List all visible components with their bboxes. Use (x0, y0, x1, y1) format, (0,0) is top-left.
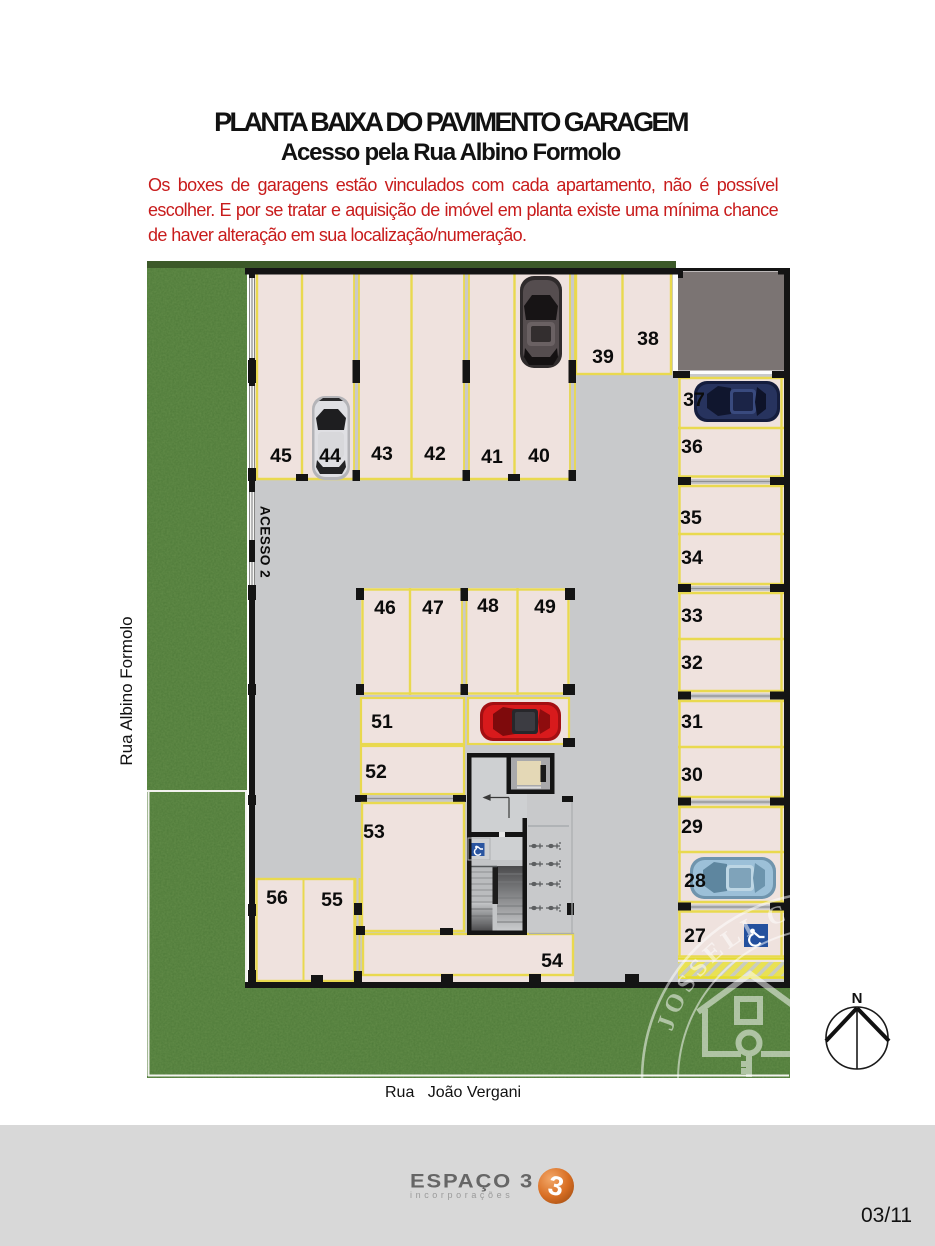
svg-text:35: 35 (680, 507, 702, 529)
svg-text:47: 47 (422, 597, 444, 619)
svg-text:46: 46 (374, 597, 396, 619)
svg-text:29: 29 (681, 816, 703, 838)
svg-text:41: 41 (481, 446, 503, 468)
svg-text:32: 32 (681, 652, 703, 674)
svg-text:N: N (852, 990, 863, 1007)
svg-text:48: 48 (477, 595, 499, 617)
svg-text:53: 53 (363, 821, 385, 843)
svg-text:Rua Albino Formolo: Rua Albino Formolo (117, 616, 136, 765)
svg-text:38: 38 (637, 328, 659, 350)
svg-text:40: 40 (528, 445, 550, 467)
svg-text:43: 43 (371, 443, 393, 465)
svg-text:42: 42 (424, 443, 446, 465)
svg-text:28: 28 (684, 870, 706, 892)
svg-text:Rua João Vergani: Rua João Vergani (385, 1084, 521, 1101)
svg-text:39: 39 (592, 346, 614, 368)
svg-text:36: 36 (681, 436, 703, 458)
svg-text:54: 54 (541, 950, 563, 972)
svg-text:51: 51 (371, 711, 393, 733)
svg-text:30: 30 (681, 764, 703, 786)
svg-text:45: 45 (270, 445, 292, 467)
svg-text:55: 55 (321, 889, 343, 911)
svg-text:27: 27 (684, 925, 706, 947)
svg-text:ACESSO 2: ACESSO 2 (257, 506, 272, 578)
svg-text:37: 37 (683, 389, 705, 411)
svg-text:44: 44 (319, 445, 341, 467)
svg-text:49: 49 (534, 596, 556, 618)
svg-text:34: 34 (681, 547, 703, 569)
svg-text:31: 31 (681, 711, 703, 733)
svg-text:33: 33 (681, 605, 703, 627)
svg-text:52: 52 (365, 761, 387, 783)
svg-text:56: 56 (266, 887, 288, 909)
